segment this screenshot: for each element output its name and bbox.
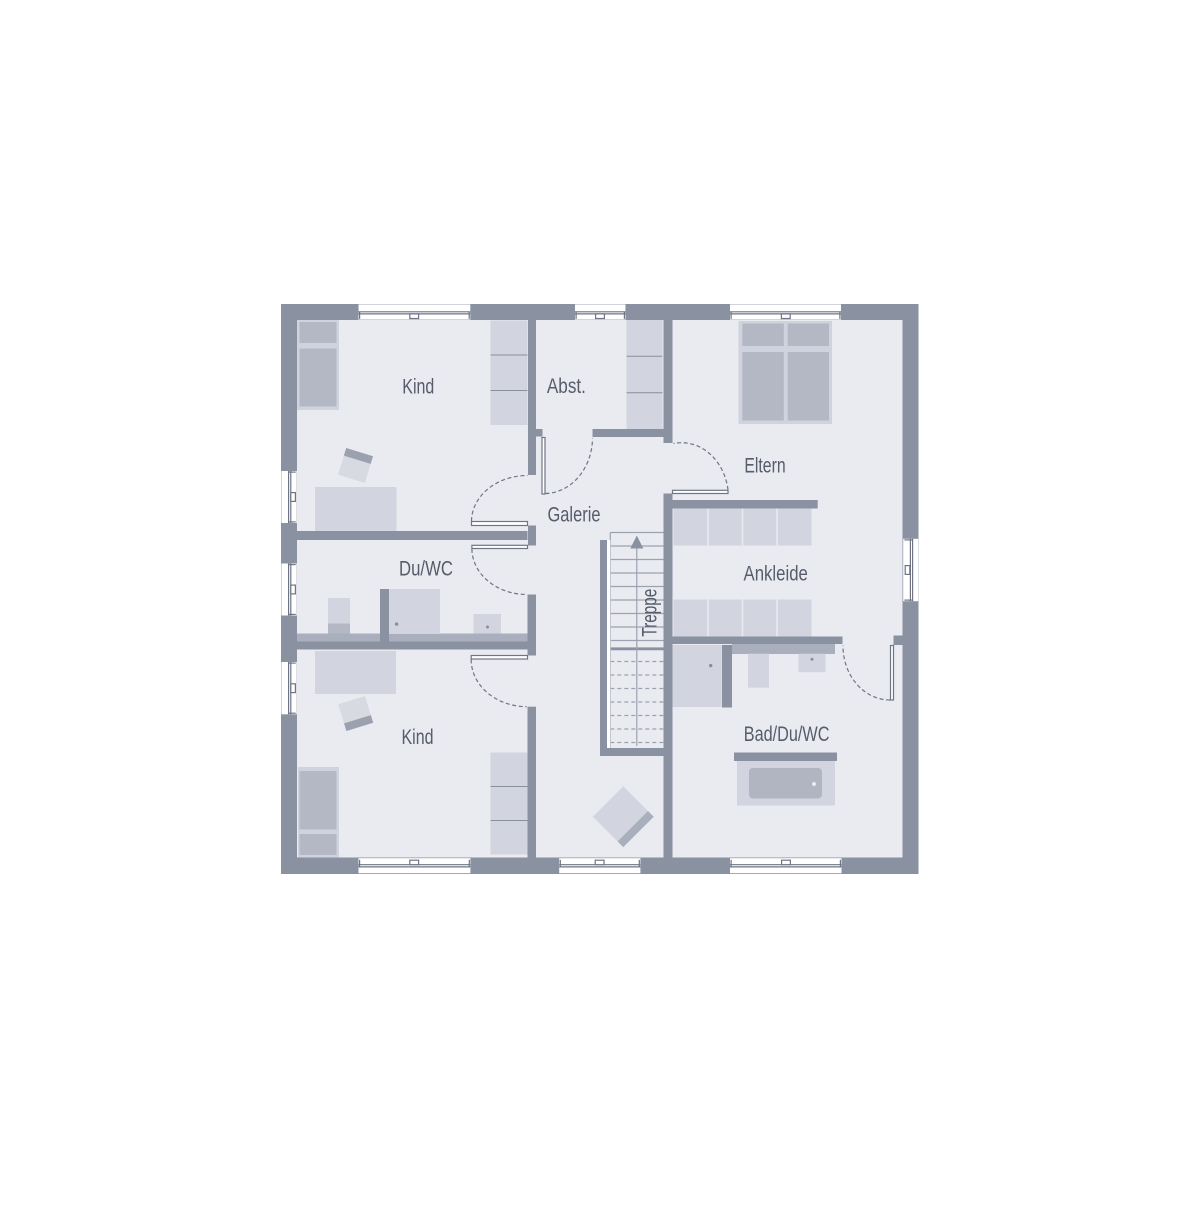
svg-text:Treppe: Treppe (637, 589, 661, 637)
svg-text:Abst.: Abst. (547, 374, 586, 398)
svg-text:Bad/Du/WC: Bad/Du/WC (744, 722, 830, 746)
svg-text:Eltern: Eltern (744, 453, 785, 477)
svg-text:Ankleide: Ankleide (744, 561, 808, 585)
svg-text:Kind: Kind (402, 725, 434, 749)
svg-text:Kind: Kind (402, 374, 434, 398)
svg-text:Du/WC: Du/WC (399, 556, 453, 580)
svg-text:Galerie: Galerie (548, 503, 601, 527)
